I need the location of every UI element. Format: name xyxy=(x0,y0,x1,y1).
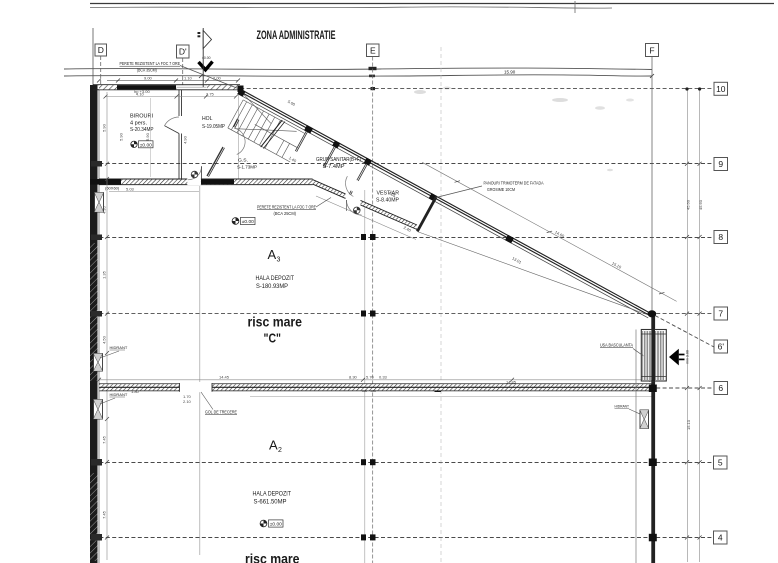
svg-text:5.90: 5.90 xyxy=(145,132,150,141)
svg-text:4 pers.: 4 pers. xyxy=(130,121,147,127)
svg-text:S-1.73MP: S-1.73MP xyxy=(237,164,257,170)
svg-text:15.10: 15.10 xyxy=(686,419,691,430)
svg-text:GROSIME 10CM: GROSIME 10CM xyxy=(487,187,515,192)
svg-text:9: 9 xyxy=(718,159,723,169)
svg-text:4.90: 4.90 xyxy=(183,135,188,144)
svg-text:45.60: 45.60 xyxy=(686,199,691,210)
svg-text:E: E xyxy=(370,46,376,56)
svg-text:S-8.40MP: S-8.40MP xyxy=(376,198,399,204)
svg-text:PERETE REZISTENT LA FOC 7 ORE: PERETE REZISTENT LA FOC 7 ORE xyxy=(120,61,181,66)
svg-text:15.90: 15.90 xyxy=(504,70,516,75)
svg-text:2: 2 xyxy=(278,447,282,454)
svg-text:1.35: 1.35 xyxy=(102,270,107,279)
svg-text:±0.00: ±0.00 xyxy=(242,219,255,224)
svg-text:5.00: 5.00 xyxy=(287,99,297,107)
svg-text:BIROURI: BIROURI xyxy=(130,114,153,120)
svg-text:14.45: 14.45 xyxy=(219,375,230,380)
svg-text:min 3.00: min 3.00 xyxy=(686,350,690,364)
svg-text:PERETE REZISTENT LA FOC 7 ORE: PERETE REZISTENT LA FOC 7 ORE xyxy=(257,205,316,210)
svg-text:4: 4 xyxy=(718,533,723,543)
svg-text:10: 10 xyxy=(716,84,726,94)
svg-text:S-180.93MP: S-180.93MP xyxy=(256,283,288,290)
svg-text:D: D xyxy=(98,45,104,55)
svg-text:2.75: 2.75 xyxy=(206,91,215,96)
svg-text:risc mare: risc mare xyxy=(245,552,300,563)
svg-text:4.10: 4.10 xyxy=(136,91,145,96)
svg-text:45.60: 45.60 xyxy=(698,199,703,210)
svg-text:F: F xyxy=(649,45,654,55)
svg-text:1.40: 1.40 xyxy=(288,155,298,163)
svg-text:13.01: 13.01 xyxy=(511,256,523,266)
svg-text:1.10: 1.10 xyxy=(184,76,193,81)
svg-text:HIDRANT: HIDRANT xyxy=(615,404,630,409)
svg-text:S-7.4MP: S-7.4MP xyxy=(323,164,346,170)
svg-text:2.00: 2.00 xyxy=(213,76,222,81)
svg-text:VESTIAR: VESTIAR xyxy=(377,191,400,197)
svg-text:6': 6' xyxy=(718,342,725,352)
svg-text:5.03: 5.03 xyxy=(126,187,135,192)
svg-text:5: 5 xyxy=(718,458,723,468)
svg-text:USA BASCULANTA: USA BASCULANTA xyxy=(600,343,633,348)
svg-text:1.80: 1.80 xyxy=(131,389,140,394)
svg-text:A: A xyxy=(269,438,278,453)
svg-text:±0.00: ±0.00 xyxy=(140,142,153,147)
svg-text:HIDRANT: HIDRANT xyxy=(110,392,128,397)
svg-text:PANOURI TRIMOTERM DE FATADA: PANOURI TRIMOTERM DE FATADA xyxy=(484,181,545,186)
svg-text:ZONA ADMINISTRATIE: ZONA ADMINISTRATIE xyxy=(257,28,336,42)
svg-text:2.10: 2.10 xyxy=(183,399,192,404)
svg-text:3: 3 xyxy=(277,257,281,264)
svg-text:5.90: 5.90 xyxy=(102,123,107,132)
svg-text:7.45: 7.45 xyxy=(102,510,107,519)
svg-text:S-19.05MP: S-19.05MP xyxy=(202,124,225,130)
svg-text:HIDRANT: HIDRANT xyxy=(110,345,128,350)
svg-text:S-661.50MP: S-661.50MP xyxy=(254,499,287,506)
svg-text:HALA DEPOZIT: HALA DEPOZIT xyxy=(253,491,292,498)
svg-text:G.S.: G.S. xyxy=(238,158,248,164)
svg-text:5.70: 5.70 xyxy=(366,374,375,379)
svg-text:7: 7 xyxy=(718,309,723,319)
svg-text:"C": "C" xyxy=(264,332,282,346)
svg-text:8: 8 xyxy=(718,232,723,242)
svg-text:HALA DEPOZIT: HALA DEPOZIT xyxy=(256,275,295,282)
svg-text:S-20.34MP: S-20.34MP xyxy=(130,127,154,133)
svg-text:6: 6 xyxy=(718,383,723,393)
svg-text:(BCA 35CM): (BCA 35CM) xyxy=(137,68,157,73)
svg-text:A: A xyxy=(268,247,277,262)
svg-text:4.35: 4.35 xyxy=(102,205,107,214)
svg-text:(BCA 25CM): (BCA 25CM) xyxy=(274,211,297,216)
svg-text:9.00: 9.00 xyxy=(144,76,153,81)
svg-text:4.50: 4.50 xyxy=(102,335,107,344)
svg-text:0.33: 0.33 xyxy=(379,374,388,379)
svg-text:±0.00: ±0.00 xyxy=(270,522,283,527)
svg-text:HOL: HOL xyxy=(202,116,213,122)
svg-text:GRUP SANITAR(B+F): GRUP SANITAR(B+F) xyxy=(316,157,361,163)
svg-text:8.30: 8.30 xyxy=(349,374,358,379)
svg-text:risc mare: risc mare xyxy=(248,315,303,330)
svg-text:GOL DE TRECERE: GOL DE TRECERE xyxy=(205,410,237,415)
svg-text:D': D' xyxy=(179,47,187,57)
svg-text:5.90: 5.90 xyxy=(119,132,124,141)
svg-text:7.45: 7.45 xyxy=(102,435,107,444)
